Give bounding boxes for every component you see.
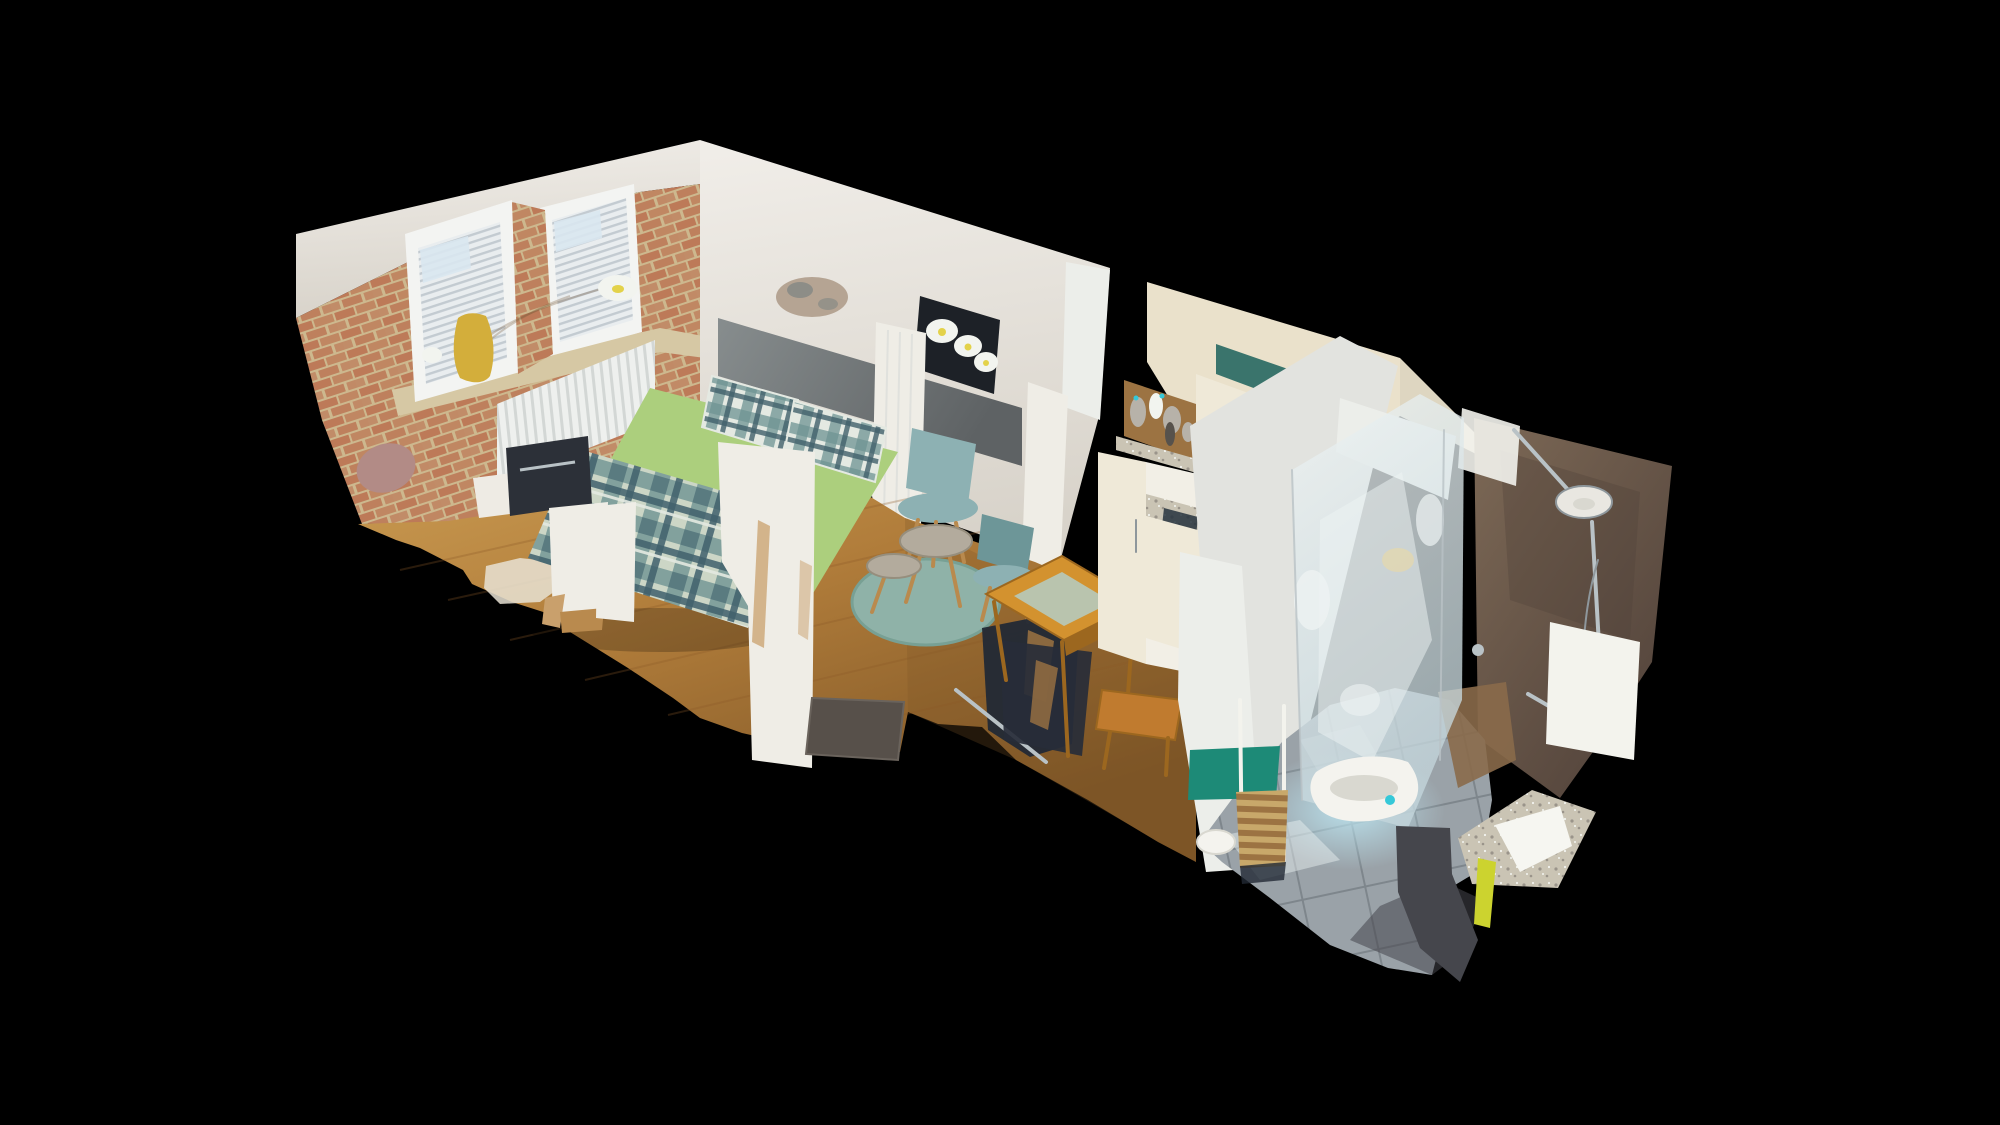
yellow-vase	[454, 313, 494, 382]
figurine-accent	[1134, 396, 1139, 401]
print-flower-center	[983, 360, 989, 366]
blossom-flower-center	[612, 285, 624, 293]
wall-scan-hole-debris	[818, 298, 838, 310]
glass-door-knob	[1472, 644, 1484, 656]
concrete-side-table	[867, 554, 921, 578]
glass-torn-blob	[1294, 570, 1330, 630]
bamboo-slat-shelf	[1236, 790, 1288, 868]
white-bowl	[1197, 830, 1235, 854]
figurine-accent	[1160, 394, 1165, 399]
desk-dark-object	[506, 436, 592, 516]
wall-scan-hole-debris	[787, 282, 813, 298]
glass-torn-blob	[1416, 494, 1444, 546]
print-flower-center	[938, 328, 946, 336]
wall-scan-hole	[776, 277, 848, 317]
figurine	[1165, 422, 1175, 446]
doormat	[806, 698, 904, 760]
dollhouse-3d-viewport[interactable]	[0, 0, 2000, 1125]
basin-cup	[1385, 795, 1395, 805]
figurine	[1130, 397, 1146, 427]
dollhouse-scene	[0, 0, 2000, 1125]
white-panel	[1546, 622, 1640, 760]
torn-wall-column-small	[596, 502, 636, 622]
print-flower-center	[965, 344, 972, 351]
sill-lamp-orb	[422, 347, 442, 363]
concrete-side-table	[900, 525, 972, 557]
glass-torn-blob	[1340, 684, 1380, 716]
stool-leg	[1166, 738, 1168, 775]
teal-chair-seat	[898, 493, 978, 523]
tall-cabinet-front	[1098, 452, 1146, 664]
warm-light-reflection	[1382, 548, 1414, 572]
shower-head-center	[1573, 498, 1595, 510]
